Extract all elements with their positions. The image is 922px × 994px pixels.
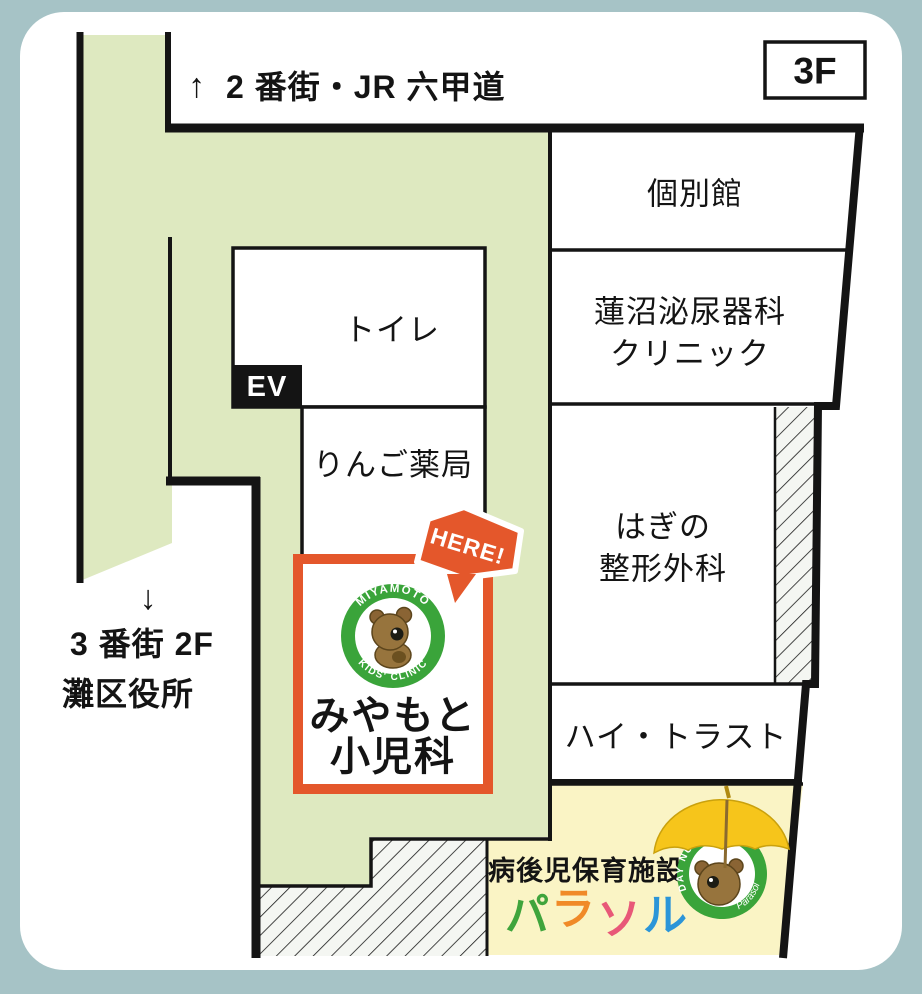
up-arrow-icon: ↑ xyxy=(188,67,205,105)
miyamoto-logo: MIYAMOTO KIDS' CLINIC xyxy=(341,583,445,688)
parasol-subtitle: 病後児保育施設 xyxy=(488,855,684,886)
elevator-label: EV xyxy=(247,371,288,403)
room-hagino-label1: はぎの xyxy=(615,510,711,545)
room-hitrust-label: ハイ・トラスト xyxy=(565,720,788,755)
clinic-name-line1: みやもと xyxy=(309,694,476,738)
room-hagino-label2: 整形外科 xyxy=(599,552,727,587)
parasol-char-2: ラ xyxy=(551,885,597,934)
floor-map: EV 3F ↑ 2 番街・JR 六甲道 ↓ 3 番街 2F 灘区役所 個別館 蓮… xyxy=(0,0,922,994)
room-hasunuma-label2: クリニック xyxy=(610,337,770,372)
parasol-char-4: ル xyxy=(643,891,689,940)
bear-mascot-icon xyxy=(370,608,412,669)
hatched-strip-right xyxy=(775,407,817,683)
clinic-name-line2: 小児科 xyxy=(330,735,456,779)
direction-left-line1: 3 番街 2F xyxy=(70,626,214,662)
parasol-char-1: パ xyxy=(505,891,551,940)
down-arrow-icon: ↓ xyxy=(140,579,157,617)
parasol-char-3: ソ xyxy=(597,895,643,944)
room-hasunuma-label1: 蓮沼泌尿器科 xyxy=(594,295,786,330)
room-toilet-label: トイレ xyxy=(344,313,440,348)
room-kobetsukan-label: 個別館 xyxy=(647,177,743,212)
room-ringo-label: りんご薬局 xyxy=(313,448,473,483)
direction-top-label: 2 番街・JR 六甲道 xyxy=(226,69,506,105)
direction-left-line2: 灘区役所 xyxy=(62,676,194,712)
floor-badge-label: 3F xyxy=(793,51,836,92)
